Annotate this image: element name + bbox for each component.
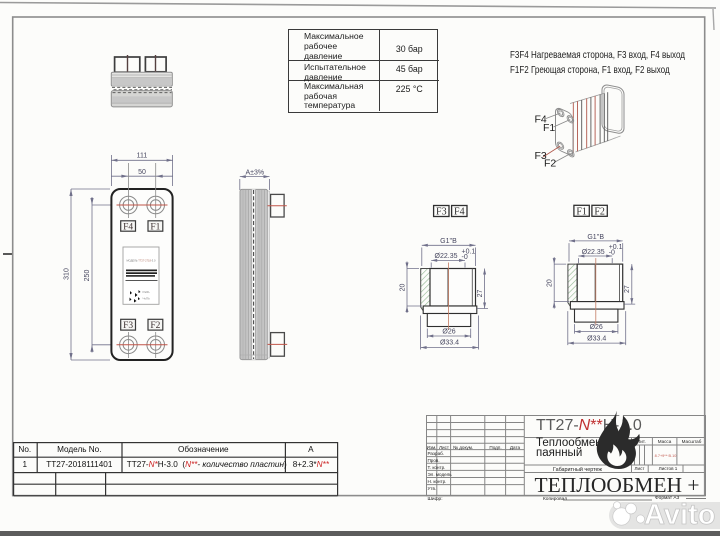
svg-text:F3: F3 [436, 207, 447, 218]
svg-text:МОДЕЛЬ ТТ27-2718-3.0: МОДЕЛЬ ТТ27-2718-3.0 [127, 258, 156, 262]
svg-text:PaЯL: PaЯL [143, 290, 151, 294]
svg-text:A±3%: A±3% [245, 170, 264, 177]
svg-text:F4: F4 [123, 222, 133, 232]
svg-text:111: 111 [137, 153, 148, 160]
svg-text:250: 250 [84, 270, 91, 282]
svg-text:F1: F1 [150, 222, 160, 232]
svg-text:F1: F1 [576, 206, 587, 217]
svg-text:50: 50 [138, 169, 146, 176]
svg-text:F2: F2 [544, 157, 556, 169]
svg-text:Ø26: Ø26 [442, 328, 455, 335]
svg-text:ЧvПb: ЧvПb [143, 297, 151, 301]
svg-text:F2: F2 [150, 321, 160, 331]
svg-text:20: 20 [399, 284, 406, 292]
svg-text:-0: -0 [462, 254, 468, 261]
svg-text:Ø33.4: Ø33.4 [440, 340, 459, 347]
svg-text:27: 27 [477, 290, 484, 298]
svg-text:F1: F1 [543, 122, 555, 134]
svg-text:F2: F2 [594, 206, 605, 217]
svg-text:310: 310 [64, 268, 71, 280]
svg-text:Ø22.35: Ø22.35 [435, 253, 458, 260]
svg-text:F3: F3 [123, 321, 133, 331]
svg-text:F4: F4 [454, 207, 465, 218]
svg-text:G1''B: G1''B [440, 238, 457, 245]
